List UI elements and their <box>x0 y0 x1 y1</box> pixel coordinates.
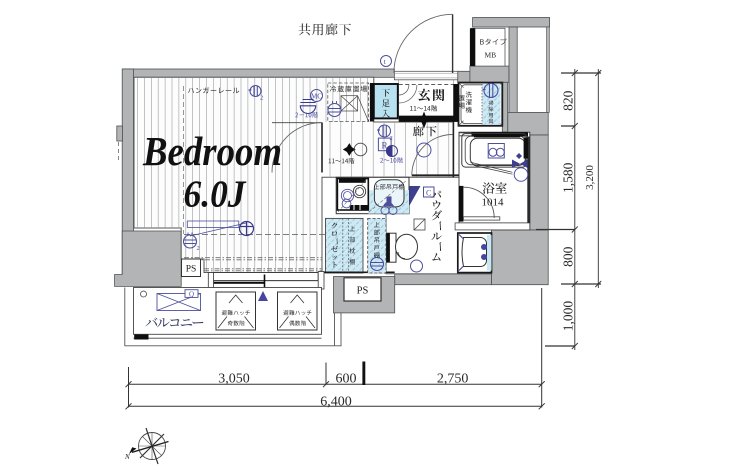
svg-text:1014: 1014 <box>482 197 505 209</box>
svg-text:MB: MB <box>485 51 497 60</box>
svg-text:6,400: 6,400 <box>320 394 352 409</box>
svg-text:N: N <box>124 453 130 461</box>
svg-text:800: 800 <box>561 246 576 267</box>
svg-text:PS: PS <box>186 265 197 275</box>
svg-text:3,050: 3,050 <box>218 371 250 386</box>
svg-text:2,750: 2,750 <box>437 371 469 386</box>
svg-text:2: 2 <box>197 245 200 252</box>
svg-text:Q: Q <box>189 291 194 299</box>
svg-text:3,200: 3,200 <box>584 165 596 190</box>
svg-text:2: 2 <box>260 95 263 102</box>
svg-text:1,000: 1,000 <box>561 301 576 332</box>
svg-text:1,580: 1,580 <box>561 162 576 193</box>
svg-text:6.0J: 6.0J <box>184 174 247 216</box>
svg-text:820: 820 <box>561 90 576 111</box>
svg-text:600: 600 <box>336 371 357 386</box>
svg-text:C: C <box>426 188 431 197</box>
svg-text:Bedroom: Bedroom <box>142 128 282 174</box>
svg-text:PS: PS <box>357 286 369 297</box>
